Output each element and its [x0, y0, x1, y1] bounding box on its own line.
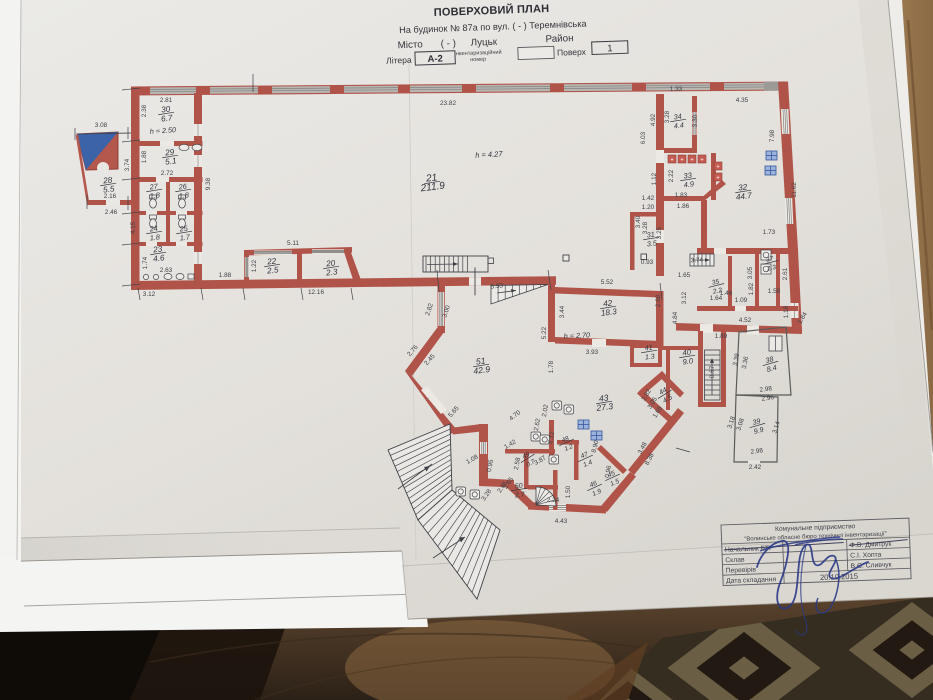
svg-text:4.15: 4.15	[130, 221, 137, 234]
svg-text:2.81: 2.81	[160, 97, 173, 104]
svg-text:2.38: 2.38	[141, 104, 148, 117]
svg-text:2.61: 2.61	[782, 267, 789, 280]
svg-text:h = 2.50: h = 2.50	[149, 125, 176, 136]
svg-text:1.09: 1.09	[735, 297, 748, 304]
svg-text:1.88: 1.88	[219, 272, 232, 279]
svg-text:1.50: 1.50	[565, 485, 572, 498]
svg-text:3.44: 3.44	[559, 305, 566, 318]
svg-text:2.3: 2.3	[325, 267, 339, 277]
svg-text:3.25: 3.25	[656, 226, 663, 239]
svg-text:4.9: 4.9	[683, 179, 694, 189]
svg-text:4.35: 4.35	[736, 97, 749, 104]
svg-text:3.08: 3.08	[95, 122, 108, 129]
svg-text:0.93: 0.93	[641, 259, 654, 266]
svg-text:1.88: 1.88	[141, 150, 148, 163]
svg-text:Район: Район	[545, 33, 573, 45]
svg-text:0.67: 0.67	[709, 365, 716, 378]
svg-text:1.46: 1.46	[720, 290, 733, 297]
svg-text:1.82: 1.82	[748, 282, 755, 295]
svg-text:2.7: 2.7	[514, 491, 527, 499]
svg-text:+: +	[716, 175, 720, 181]
svg-text:23.82: 23.82	[440, 100, 456, 107]
svg-text:Склав: Склав	[725, 557, 745, 565]
svg-text:h = 4.27: h = 4.27	[475, 149, 504, 159]
svg-text:+: +	[700, 157, 704, 163]
svg-text:+: +	[690, 157, 694, 163]
svg-text:3.12: 3.12	[681, 291, 688, 304]
svg-text:2.68: 2.68	[655, 294, 662, 307]
svg-text:2.24: 2.24	[547, 497, 560, 504]
svg-text:1.86: 1.86	[677, 203, 690, 210]
svg-text:2.22: 2.22	[668, 169, 675, 182]
svg-text:3.30: 3.30	[692, 114, 699, 127]
svg-text:1: 1	[607, 43, 613, 54]
svg-text:h = 2.70: h = 2.70	[564, 330, 591, 340]
svg-text:4.92: 4.92	[650, 113, 657, 126]
svg-text:1.73: 1.73	[763, 229, 776, 236]
svg-text:5.22: 5.22	[541, 326, 548, 339]
svg-text:Поверх: Поверх	[557, 47, 587, 58]
svg-text:4.4: 4.4	[673, 120, 684, 130]
svg-text:Місто: Місто	[397, 39, 423, 51]
svg-text:1.18: 1.18	[783, 305, 790, 318]
svg-text:1.65: 1.65	[678, 272, 691, 279]
svg-text:5.1: 5.1	[165, 156, 177, 166]
svg-text:+: +	[716, 164, 720, 170]
svg-text:+: +	[680, 157, 684, 163]
svg-text:9.0: 9.0	[682, 356, 694, 366]
svg-text:3.28: 3.28	[664, 110, 671, 123]
svg-text:1.78: 1.78	[548, 360, 555, 373]
svg-text:Перевірів: Перевірів	[726, 566, 757, 575]
svg-text:4.52: 4.52	[739, 317, 752, 324]
svg-text:А-2: А-2	[427, 53, 443, 65]
svg-text:1.12: 1.12	[651, 172, 658, 185]
svg-text:3.28: 3.28	[642, 221, 649, 234]
svg-text:( - ): ( - )	[440, 38, 456, 50]
svg-text:7.98: 7.98	[769, 129, 776, 142]
svg-text:9.38: 9.38	[205, 177, 212, 190]
svg-text:1.20: 1.20	[642, 204, 655, 211]
svg-text:1.8: 1.8	[178, 190, 189, 200]
svg-text:Літера: Літера	[386, 55, 412, 66]
svg-text:+: +	[670, 157, 674, 163]
svg-text:42.9: 42.9	[473, 364, 491, 376]
svg-text:3.74: 3.74	[690, 257, 703, 265]
svg-text:3.12: 3.12	[143, 291, 156, 298]
svg-text:3.93: 3.93	[586, 349, 599, 356]
svg-text:1.8: 1.8	[149, 190, 160, 200]
svg-text:2.42: 2.42	[749, 464, 762, 471]
svg-text:1.83: 1.83	[675, 192, 688, 199]
svg-text:1.89: 1.89	[715, 333, 728, 340]
svg-text:3.05: 3.05	[747, 266, 754, 279]
svg-text:4.6: 4.6	[153, 253, 166, 263]
svg-text:5.53: 5.53	[490, 282, 504, 290]
svg-text:2.63: 2.63	[160, 267, 173, 274]
svg-text:2.46: 2.46	[105, 209, 118, 216]
svg-text:4.43: 4.43	[555, 518, 568, 525]
svg-text:1.3: 1.3	[645, 353, 656, 361]
svg-text:2.16: 2.16	[104, 193, 117, 200]
svg-text:Луцьк: Луцьк	[470, 37, 498, 49]
svg-text:6.03: 6.03	[640, 131, 647, 144]
svg-text:3.40: 3.40	[635, 215, 642, 228]
svg-text:1.8: 1.8	[149, 232, 160, 242]
svg-text:11.62: 11.62	[791, 182, 798, 198]
svg-text:6.7: 6.7	[161, 113, 174, 123]
svg-text:номер: номер	[470, 57, 486, 64]
svg-text:2.5: 2.5	[266, 265, 280, 275]
svg-text:1.74: 1.74	[142, 256, 149, 269]
svg-text:4.84: 4.84	[672, 311, 679, 324]
svg-text:2.72: 2.72	[161, 170, 174, 177]
svg-text:1.58: 1.58	[768, 288, 781, 295]
svg-text:1.42: 1.42	[642, 195, 655, 202]
svg-text:1.22: 1.22	[251, 259, 258, 272]
svg-text:12.16: 12.16	[308, 289, 324, 296]
svg-text:1.33: 1.33	[670, 86, 683, 93]
svg-text:С.І. Хопта: С.І. Хопта	[850, 552, 882, 560]
svg-text:5.52: 5.52	[601, 279, 614, 286]
svg-text:3.74: 3.74	[124, 158, 131, 171]
svg-text:5.11: 5.11	[287, 240, 299, 247]
